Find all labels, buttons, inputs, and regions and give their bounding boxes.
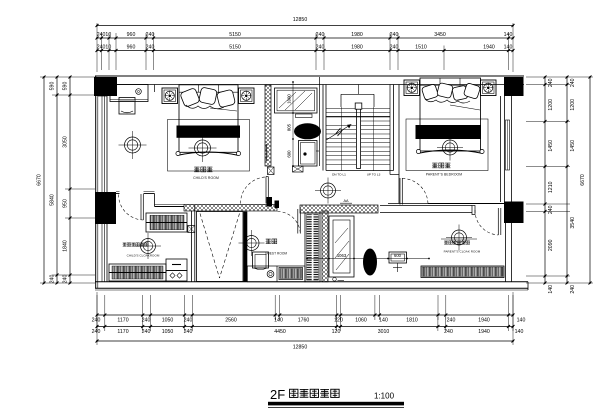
svg-text:1810: 1810 bbox=[406, 317, 418, 323]
svg-text:2090: 2090 bbox=[548, 239, 554, 251]
svg-text:240: 240 bbox=[142, 329, 151, 335]
svg-text:12850: 12850 bbox=[293, 17, 308, 23]
svg-text:6670: 6670 bbox=[37, 174, 43, 186]
svg-text:590: 590 bbox=[50, 82, 56, 91]
svg-text:1840: 1840 bbox=[63, 240, 69, 252]
svg-text:240: 240 bbox=[316, 44, 325, 50]
svg-text:1060: 1060 bbox=[355, 317, 367, 323]
svg-text:240: 240 bbox=[50, 275, 56, 284]
svg-text:PARENT'S CLOAK ROOM: PARENT'S CLOAK ROOM bbox=[444, 250, 481, 254]
svg-text:240: 240 bbox=[570, 78, 576, 87]
svg-text:240: 240 bbox=[92, 329, 101, 335]
svg-text:240: 240 bbox=[316, 32, 325, 38]
svg-text:3050: 3050 bbox=[63, 136, 69, 148]
svg-text:1940: 1940 bbox=[478, 329, 490, 335]
svg-text:3010: 3010 bbox=[378, 329, 390, 335]
svg-text:240: 240 bbox=[146, 32, 155, 38]
svg-text:120: 120 bbox=[334, 317, 343, 323]
svg-text:600: 600 bbox=[287, 150, 292, 158]
svg-text:140: 140 bbox=[504, 32, 513, 38]
svg-text:1980: 1980 bbox=[351, 32, 363, 38]
svg-text:140: 140 bbox=[515, 329, 524, 335]
svg-text:240: 240 bbox=[146, 44, 155, 50]
svg-text:1760: 1760 bbox=[298, 317, 310, 323]
svg-text:5840: 5840 bbox=[50, 194, 56, 206]
svg-text:240: 240 bbox=[447, 317, 456, 323]
svg-text:1200: 1200 bbox=[548, 99, 554, 111]
svg-text:1940: 1940 bbox=[483, 44, 495, 50]
svg-text:3450: 3450 bbox=[434, 32, 446, 38]
svg-text:2560: 2560 bbox=[225, 317, 237, 323]
svg-text:5150: 5150 bbox=[229, 32, 241, 38]
svg-text:140: 140 bbox=[517, 317, 526, 323]
svg-text:1170: 1170 bbox=[117, 329, 128, 335]
svg-text:960: 960 bbox=[127, 32, 136, 38]
svg-text:240: 240 bbox=[63, 275, 69, 284]
svg-text:3540: 3540 bbox=[570, 217, 576, 229]
svg-text:DN TO L1: DN TO L1 bbox=[332, 173, 346, 177]
svg-text:1510: 1510 bbox=[415, 44, 427, 50]
svg-text:4450: 4450 bbox=[274, 329, 286, 335]
svg-text:240: 240 bbox=[92, 317, 101, 323]
svg-text:240: 240 bbox=[390, 32, 399, 38]
svg-text:950: 950 bbox=[63, 199, 69, 208]
svg-text:1050: 1050 bbox=[162, 317, 174, 323]
svg-text:PARENT'S BEDROOM: PARENT'S BEDROOM bbox=[426, 173, 463, 177]
svg-text:240: 240 bbox=[142, 317, 151, 323]
svg-text:1980: 1980 bbox=[351, 44, 363, 50]
svg-text:CHILD'S CLOAKROOM: CHILD'S CLOAKROOM bbox=[127, 254, 160, 258]
svg-text:805: 805 bbox=[287, 123, 292, 131]
svg-text:240: 240 bbox=[570, 285, 576, 294]
svg-text:140: 140 bbox=[379, 317, 388, 323]
svg-text:1210: 1210 bbox=[548, 181, 554, 193]
svg-text:1450: 1450 bbox=[548, 140, 554, 152]
svg-text:140: 140 bbox=[504, 44, 513, 50]
svg-text:1170: 1170 bbox=[117, 317, 128, 323]
svg-text:1200: 1200 bbox=[570, 99, 576, 111]
svg-text:1450: 1450 bbox=[570, 140, 576, 152]
svg-text:6670: 6670 bbox=[580, 174, 586, 186]
svg-text:1:100: 1:100 bbox=[374, 392, 395, 401]
svg-text:AA: AA bbox=[343, 199, 349, 203]
svg-text:590: 590 bbox=[63, 82, 69, 91]
svg-text:UP TO L3: UP TO L3 bbox=[367, 173, 381, 177]
svg-text:240: 240 bbox=[548, 78, 554, 87]
svg-text:1940: 1940 bbox=[478, 317, 490, 323]
svg-text:1000: 1000 bbox=[287, 94, 292, 104]
svg-text:12850: 12850 bbox=[293, 345, 308, 351]
svg-text:1063: 1063 bbox=[337, 253, 347, 258]
svg-text:2F: 2F bbox=[270, 387, 285, 402]
svg-text:240: 240 bbox=[184, 329, 193, 335]
svg-text:5150: 5150 bbox=[229, 44, 241, 50]
svg-text:140: 140 bbox=[274, 317, 283, 323]
svg-text:1050: 1050 bbox=[162, 329, 174, 335]
svg-text:240: 240 bbox=[184, 317, 193, 323]
svg-text:140: 140 bbox=[548, 285, 554, 294]
svg-text:CHILD'S ROOM: CHILD'S ROOM bbox=[193, 176, 219, 180]
svg-text:240: 240 bbox=[548, 205, 554, 214]
svg-text:240: 240 bbox=[390, 44, 399, 50]
svg-text:120: 120 bbox=[332, 329, 341, 335]
svg-text:960: 960 bbox=[127, 44, 136, 50]
